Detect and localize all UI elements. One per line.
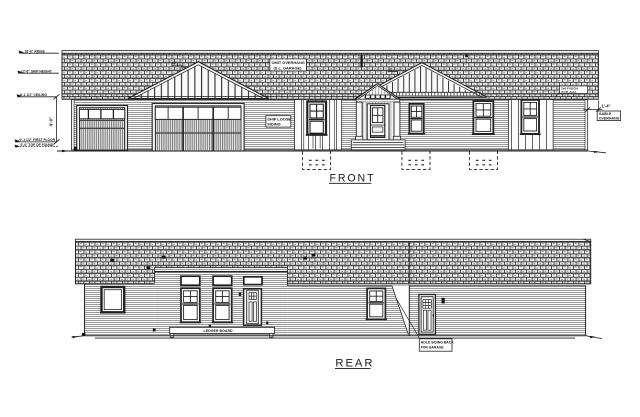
- svg-text:4: 4: [183, 66, 185, 70]
- svg-text:FRONT: FRONT: [330, 172, 376, 184]
- svg-text:12: 12: [388, 68, 392, 72]
- svg-text:GABLE: GABLE: [599, 112, 612, 116]
- svg-text:HOLD SIDING BACK: HOLD SIDING BACK: [421, 341, 455, 345]
- svg-text:9'-0": 9'-0": [49, 117, 54, 126]
- svg-text:16'-0" RIDGE: 16'-0" RIDGE: [25, 49, 46, 53]
- svg-text:(TYP. ALL): (TYP. ALL): [561, 90, 576, 94]
- svg-text:0'-1 1/2" FIRST FLOOR: 0'-1 1/2" FIRST FLOOR: [20, 138, 56, 142]
- svg-text:OVERHANG: OVERHANG: [599, 117, 620, 121]
- svg-text:REAR: REAR: [335, 358, 374, 370]
- svg-text:4: 4: [398, 72, 400, 76]
- svg-text:LEDGER BOARD: LEDGER BOARD: [204, 329, 234, 333]
- svg-text:9'-1 1/2" CEILING: 9'-1 1/2" CEILING: [20, 93, 47, 97]
- svg-text:FOR GARAGE: FOR GARAGE: [421, 346, 445, 350]
- svg-text:0'-0" TOP OF FOUND.: 0'-0" TOP OF FOUND.: [21, 143, 55, 147]
- svg-text:(S.L. GARAGE): (S.L. GARAGE): [274, 65, 303, 70]
- svg-text:1'-4": 1'-4": [602, 104, 611, 109]
- svg-text:SIDING: SIDING: [267, 122, 280, 127]
- svg-text:12: 12: [172, 61, 176, 65]
- svg-text:12'-6" SHIP HEIGHT: 12'-6" SHIP HEIGHT: [21, 69, 52, 73]
- svg-text:OMIT OVERHANG: OMIT OVERHANG: [272, 60, 305, 65]
